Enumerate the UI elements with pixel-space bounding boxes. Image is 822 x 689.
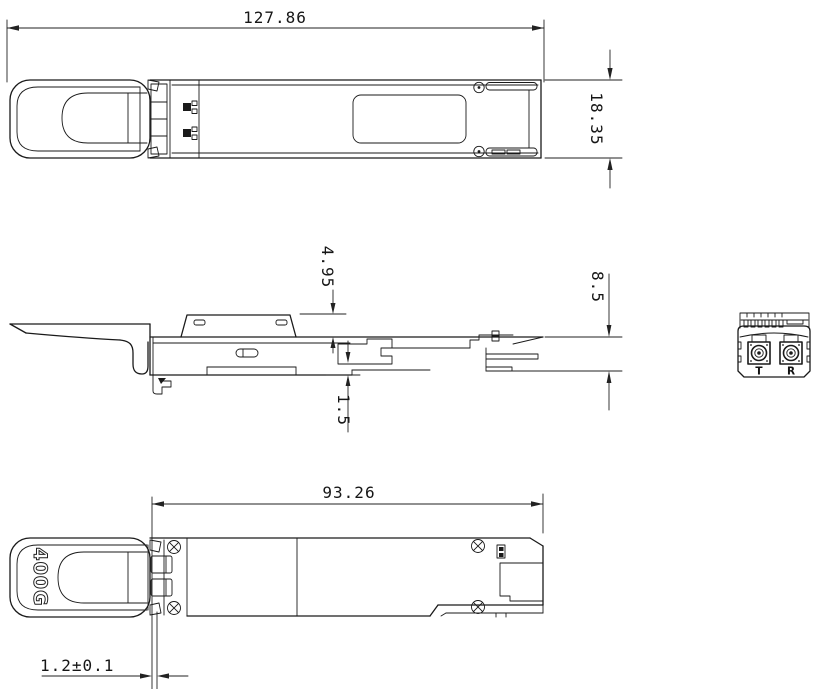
screw-icon [472, 601, 485, 614]
dim-bottom-step-text: 1.5 [334, 394, 353, 426]
dim-body-length-text: 93.26 [322, 483, 375, 502]
screw-icon [168, 602, 181, 615]
dim-bottom-step: 1.5 [326, 341, 360, 432]
end-view: T R [738, 313, 810, 378]
label-recess [353, 95, 466, 143]
dim-block-height-text: 4.95 [318, 246, 337, 289]
bottom-view: 93.26 400G [10, 483, 543, 689]
lc-port-transmit: T [748, 335, 770, 378]
lc-port-receive: R [780, 335, 802, 378]
latch-collar-top [148, 80, 167, 158]
dim-body-height-text: 8.5 [588, 271, 607, 303]
screw-icon [472, 540, 485, 553]
screw-icon [168, 541, 181, 554]
mechanical-drawing-sheet: 127.86 [0, 0, 822, 689]
dim-overall-length: 127.86 [7, 8, 544, 82]
top-view: 127.86 [7, 8, 622, 188]
dim-overall-length-text: 127.86 [243, 8, 307, 27]
screws-bottom [168, 540, 485, 615]
dim-latch-offset-text: 1.2±0.1 [40, 656, 114, 675]
dim-body-length: 93.26 [152, 483, 543, 533]
dim-overall-width-text: 18.35 [587, 92, 606, 145]
pull-tab-side [10, 324, 150, 374]
side-view: 4.95 1.5 8.5 [10, 246, 622, 432]
dim-overall-width: 18.35 [545, 50, 622, 188]
end-bracket-top [474, 82, 537, 156]
port-transmit-label: T [755, 366, 763, 378]
transceiver-outline-drawing: 127.86 [0, 0, 822, 689]
raised-block-side [181, 315, 296, 337]
port-receive-label: R [787, 366, 795, 378]
emi-contact-pads [183, 101, 197, 140]
pull-tab-top [10, 80, 150, 158]
pull-tab-bottom: 400G [10, 538, 150, 617]
module-marking-text: 400G [29, 547, 51, 606]
